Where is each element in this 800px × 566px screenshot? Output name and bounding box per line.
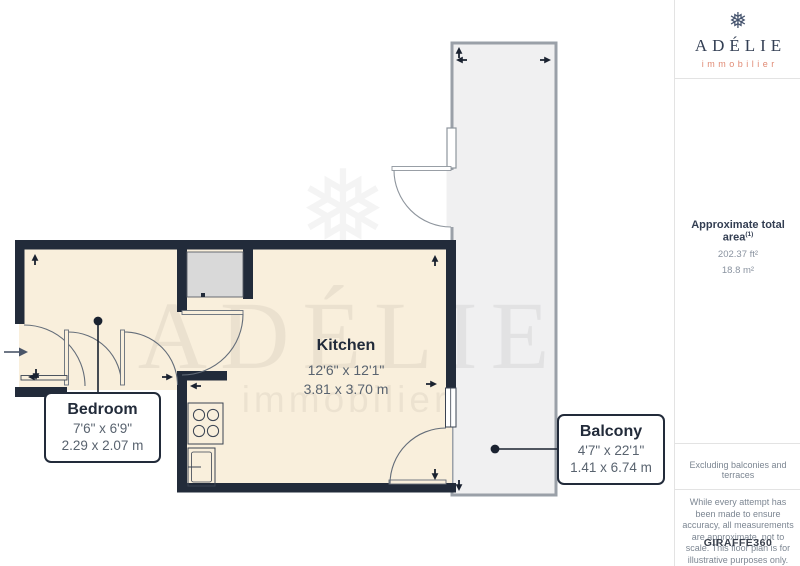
snowflake-icon: ❅ [675,10,800,34]
exclusion-note: Excluding balconies and terraces [675,460,800,480]
kitchen-window [446,388,457,427]
brand-name: ADÉLIE [675,36,800,56]
giraffe360-credit: GIRAFFE360 [675,537,800,549]
disclaimer-text: While every attempt has been made to ens… [682,497,794,566]
total-area-imperial: 202.37 ft² [675,249,800,260]
bedroom-sill [21,376,67,381]
brand-logo: ❅ ADÉLIE immobilier [675,10,800,69]
balcony-upper-door-leaf [392,167,451,171]
watermark-snowflake-icon: ❅ [298,148,389,273]
wall-kitchen-left-stub [187,371,227,381]
total-area-title-text: Approximate total area [691,219,785,244]
bedroom-name: Bedroom [48,400,157,420]
bedroom-label: Bedroom 7'6" x 6'9" 2.29 x 2.07 m [44,392,161,463]
total-area-footnote-marker: (1) [745,231,753,238]
brand-tagline: immobilier [675,59,800,69]
bedroom-dim-imperial: 7'6" x 6'9" [48,420,157,437]
balcony-name: Balcony [561,422,661,442]
wall-closet-right [243,249,253,299]
bedroom-dim-metric: 2.29 x 2.07 m [48,437,157,454]
info-sidebar: ❅ ADÉLIE immobilier Approximate total ar… [674,0,800,566]
closet-door-leaf-2 [121,330,125,385]
wall-kitchen-left [177,371,187,492]
divider [675,443,800,444]
divider [675,78,800,79]
kitchen-name: Kitchen [266,336,426,356]
balcony-door-leaf [389,480,446,484]
wall-left [15,240,25,324]
wall-top [15,240,456,250]
kitchen-label: Kitchen 12'6" x 12'1" 3.81 x 3.70 m [266,336,426,399]
kitchen-door-leaf [182,311,243,315]
kitchen-dim-metric: 3.81 x 3.70 m [266,380,426,399]
balcony-dim-imperial: 4'7" x 22'1" [561,442,661,459]
balcony-label: Balcony 4'7" x 22'1" 1.41 x 6.74 m [557,414,665,485]
wall-closet-left [177,249,187,312]
total-area-metric: 18.8 m² [675,265,800,276]
balcony-floor [452,43,556,495]
giraffe360-suffix: 360 [753,537,772,549]
closet [187,252,243,297]
total-area-title: Approximate total area(1) [675,219,800,244]
giraffe360-brand: GIRAFFE [704,537,754,549]
kitchen-dim-imperial: 12'6" x 12'1" [266,361,426,380]
balcony-dim-metric: 1.41 x 6.74 m [561,459,661,476]
total-area-block: Approximate total area(1) 202.37 ft² 18.… [675,219,800,276]
floorplan-page: ❅ ADÉLIE immobilier [0,0,800,566]
balcony-wall-opening [447,170,457,227]
wall-right [446,240,456,388]
balcony-wall-window [447,128,456,168]
balcony-upper-door-arc [394,170,451,227]
divider [675,489,800,490]
